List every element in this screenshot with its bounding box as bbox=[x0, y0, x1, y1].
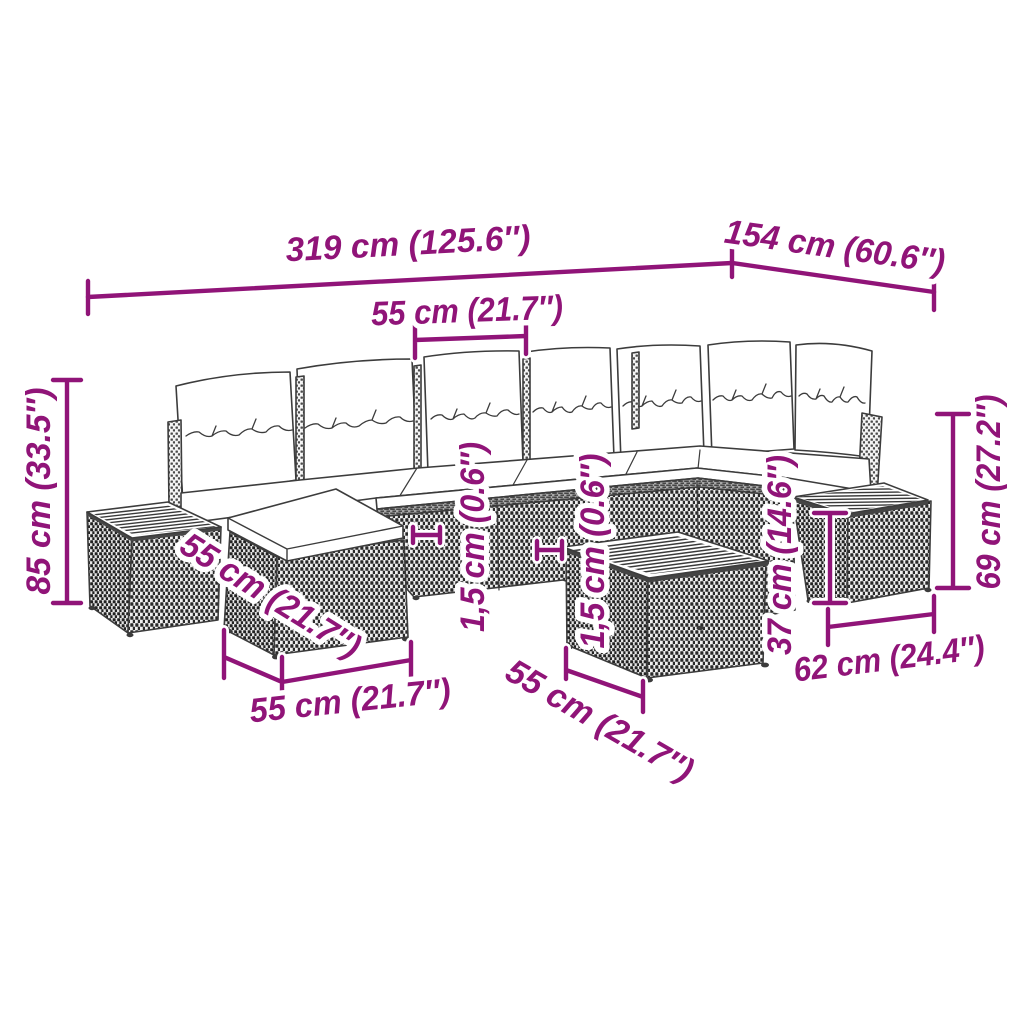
svg-text:1,5 cm (0.6″): 1,5 cm (0.6″) bbox=[574, 454, 612, 649]
svg-text:85 cm (33.5″): 85 cm (33.5″) bbox=[20, 388, 58, 595]
svg-text:69 cm (27.2″): 69 cm (27.2″) bbox=[970, 395, 1008, 590]
svg-text:1,5 cm (0.6″): 1,5 cm (0.6″) bbox=[454, 442, 492, 632]
svg-text:55 cm (21.7″): 55 cm (21.7″) bbox=[370, 289, 563, 334]
svg-text:37 cm (14.6″): 37 cm (14.6″) bbox=[761, 455, 799, 655]
